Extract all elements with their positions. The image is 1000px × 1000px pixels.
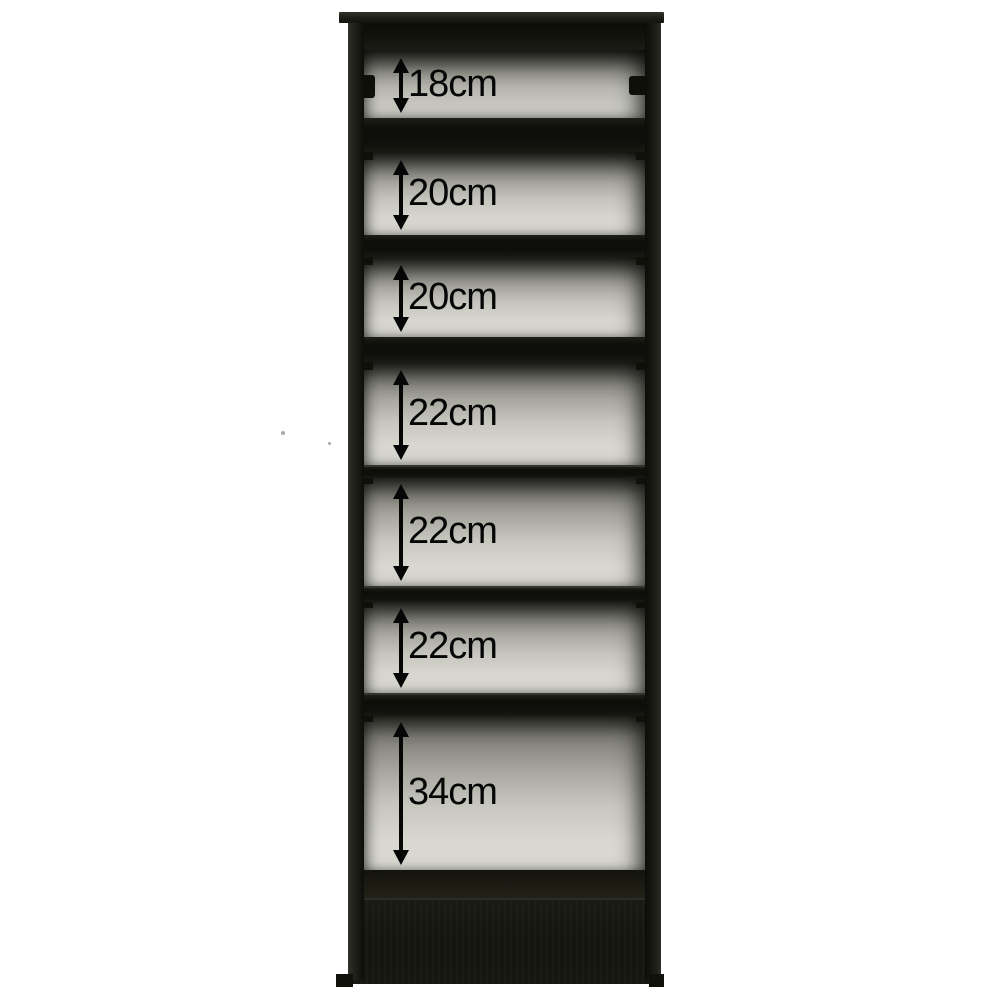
foot-left [336,974,353,987]
arrowhead-bottom [393,215,409,230]
foot-right [649,974,664,987]
image-speck [328,442,331,445]
panel-notch [364,257,373,265]
arrow-line [399,170,403,220]
dimension-arrow [393,484,409,581]
compartment-1: 18cm [364,50,645,118]
dimension-arrow [393,265,409,332]
dimension-label: 34cm [408,714,497,870]
dimension-label: 20cm [408,257,497,337]
arrowhead-bottom [393,566,409,581]
panel-notch [636,257,645,265]
panel-notch [636,362,645,370]
arrow-line [399,275,403,322]
shelf-board-4 [364,465,645,478]
bookcase-dimension-diagram: 18cm 20cm 20cm 22cm [0,0,1000,1000]
shelf-board-2 [364,235,645,257]
top-panel-underside [364,22,645,50]
panel-notch [636,152,645,160]
dimension-label: 18cm [408,50,497,118]
arrowhead-bottom [393,850,409,865]
dimension-arrow [393,722,409,865]
compartment-6: 22cm [364,600,645,693]
shelf-board-1 [364,118,645,152]
compartment-2: 20cm [364,152,645,235]
arrow-line [399,732,403,855]
compartment-7: 34cm [364,714,645,870]
panel-notch [364,152,373,160]
arrowhead-bottom [393,673,409,688]
shelf-board-5 [364,586,645,602]
top-cap [339,12,664,23]
shelf-board-6 [364,693,645,716]
bottom-board-top-surface [348,870,661,900]
arrowhead-bottom [393,98,409,113]
arrowhead-bottom [393,445,409,460]
dimension-label: 22cm [408,600,497,693]
compartment-3: 20cm [364,257,645,337]
compartment-5: 22cm [364,476,645,586]
dimension-label: 20cm [408,152,497,235]
arrow-line [399,618,403,678]
panel-notch [364,362,373,370]
plinth [348,898,661,984]
dimension-arrow [393,160,409,230]
compartment-4: 22cm [364,362,645,465]
arrow-line [399,380,403,450]
image-speck [281,431,285,435]
side-panel-left [348,22,364,980]
cam-lock-notch-right [629,76,646,95]
arrow-line [399,494,403,571]
dimension-label: 22cm [408,476,497,586]
dimension-arrow [393,58,409,113]
arrowhead-bottom [393,317,409,332]
dimension-arrow [393,608,409,688]
dimension-arrow [393,370,409,460]
dimension-label: 22cm [408,362,497,465]
side-panel-right [645,22,661,980]
shelf-board-3 [364,337,645,362]
